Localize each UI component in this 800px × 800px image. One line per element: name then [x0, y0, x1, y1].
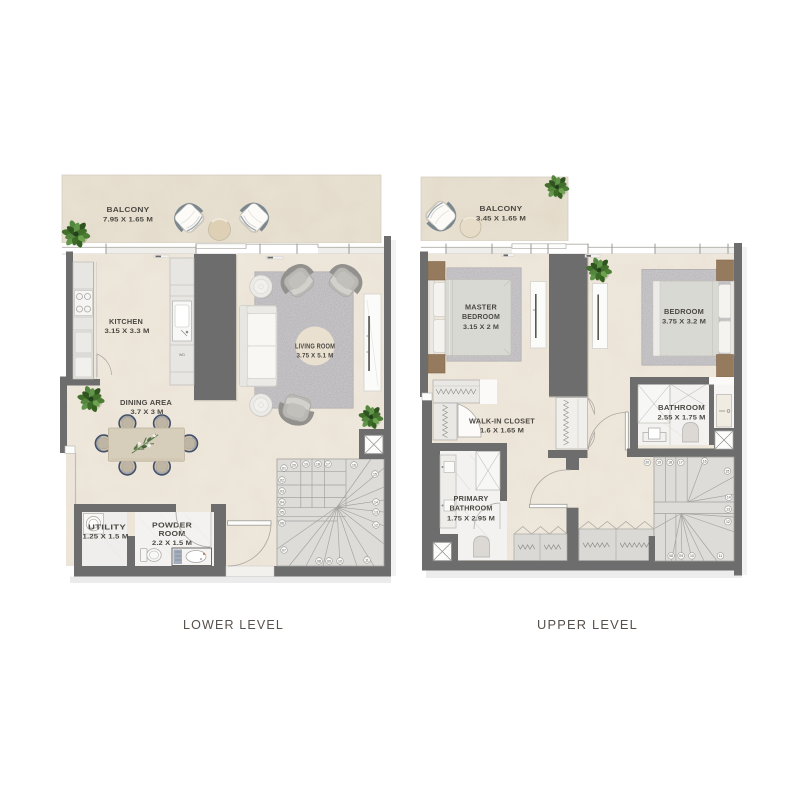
svg-text:LOWER LEVEL: LOWER LEVEL	[183, 617, 284, 632]
svg-text:04: 04	[280, 500, 284, 504]
svg-text:20: 20	[292, 463, 296, 467]
svg-text:06: 06	[280, 521, 284, 525]
svg-text:BATHROOM: BATHROOM	[450, 506, 493, 513]
svg-text:3.75 X 3.2 M: 3.75 X 3.2 M	[662, 319, 706, 326]
svg-text:20: 20	[645, 461, 649, 465]
svg-text:12: 12	[726, 520, 730, 524]
svg-text:UTILITY: UTILITY	[88, 525, 126, 532]
svg-text:11: 11	[365, 558, 369, 562]
svg-text:14: 14	[727, 496, 731, 500]
svg-text:PRIMARY: PRIMARY	[454, 496, 489, 503]
svg-text:09: 09	[327, 559, 331, 563]
svg-text:13: 13	[374, 510, 378, 514]
svg-text:18: 18	[668, 461, 672, 465]
svg-text:MASTER: MASTER	[465, 305, 497, 312]
svg-text:13: 13	[726, 507, 730, 511]
svg-text:07: 07	[282, 548, 286, 552]
svg-text:3.75 X 5.1 M: 3.75 X 5.1 M	[297, 353, 334, 360]
svg-text:03: 03	[280, 489, 284, 493]
svg-text:1.75 X 2.95 M: 1.75 X 2.95 M	[447, 516, 495, 523]
svg-text:3.45 X 1.65 M: 3.45 X 1.65 M	[476, 216, 526, 223]
svg-text:BALCONY: BALCONY	[107, 207, 150, 214]
svg-text:10: 10	[690, 554, 694, 558]
svg-text:POWDER: POWDER	[152, 523, 192, 530]
svg-text:19: 19	[304, 462, 308, 466]
svg-text:2.2 X 1.5 M: 2.2 X 1.5 M	[152, 540, 192, 547]
svg-text:UPPER LEVEL: UPPER LEVEL	[537, 617, 638, 632]
svg-text:16: 16	[352, 463, 356, 467]
svg-text:ROOM: ROOM	[159, 531, 186, 538]
svg-text:05: 05	[280, 510, 284, 514]
svg-text:1.25 X 1.5 M: 1.25 X 1.5 M	[83, 534, 129, 541]
svg-text:15: 15	[725, 469, 729, 473]
svg-text:14: 14	[374, 500, 378, 504]
svg-text:1.6 X 1.65 M: 1.6 X 1.65 M	[480, 428, 524, 435]
svg-text:17: 17	[679, 461, 683, 465]
svg-text:DINING AREA: DINING AREA	[120, 400, 172, 407]
svg-text:16: 16	[703, 459, 707, 463]
svg-text:11: 11	[719, 554, 723, 558]
svg-text:08: 08	[669, 554, 673, 558]
svg-text:17: 17	[326, 462, 330, 466]
svg-text:BATHROOM: BATHROOM	[658, 405, 705, 412]
svg-text:3.15 X 2 M: 3.15 X 2 M	[463, 324, 499, 331]
svg-text:BEDROOM: BEDROOM	[462, 314, 500, 321]
svg-text:09: 09	[679, 554, 683, 558]
svg-text:10: 10	[338, 559, 342, 563]
svg-text:KITCHEN: KITCHEN	[109, 319, 143, 326]
svg-text:WD: WD	[179, 353, 185, 357]
svg-text:18: 18	[316, 462, 320, 466]
svg-text:2.55 X 1.75 M: 2.55 X 1.75 M	[658, 415, 706, 422]
svg-text:12: 12	[374, 523, 378, 527]
svg-text:01: 01	[282, 466, 286, 470]
svg-text:BALCONY: BALCONY	[480, 206, 523, 213]
svg-text:7.95 X 1.65 M: 7.95 X 1.65 M	[103, 217, 153, 224]
svg-text:BEDROOM: BEDROOM	[664, 309, 704, 316]
svg-text:3.15 X 3.3 M: 3.15 X 3.3 M	[105, 328, 150, 335]
svg-text:19: 19	[657, 461, 661, 465]
svg-text:WALK-IN CLOSET: WALK-IN CLOSET	[469, 419, 536, 426]
svg-text:02: 02	[280, 478, 284, 482]
svg-text:15: 15	[373, 472, 377, 476]
svg-text:LIVING ROOM: LIVING ROOM	[295, 344, 335, 351]
svg-text:08: 08	[317, 559, 321, 563]
